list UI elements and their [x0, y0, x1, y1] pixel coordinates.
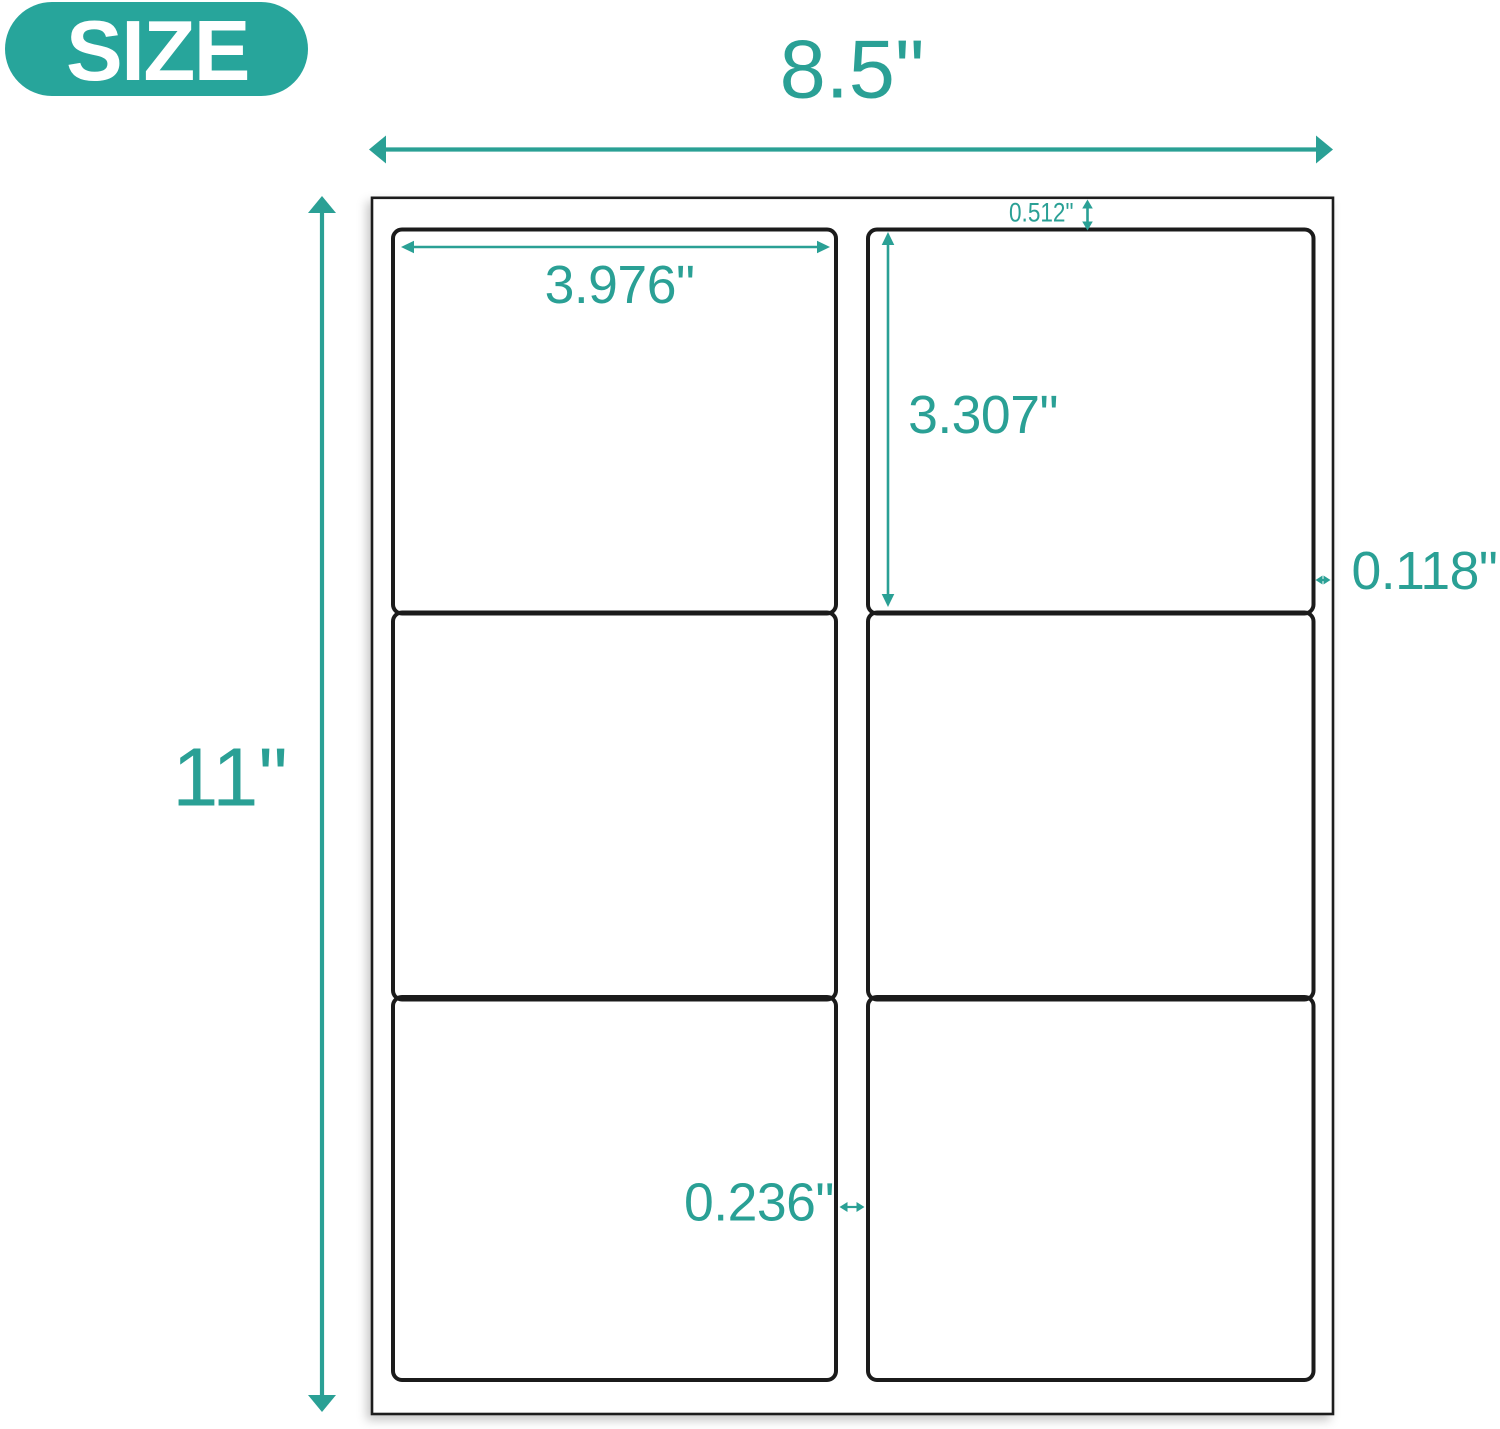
svg-text:3.976": 3.976"	[545, 256, 695, 315]
svg-text:0.512": 0.512"	[1009, 198, 1074, 228]
svg-text:8.5": 8.5"	[780, 23, 925, 116]
svg-text:0.118": 0.118"	[1352, 542, 1498, 601]
svg-text:3.307": 3.307"	[908, 386, 1058, 445]
svg-text:SIZE: SIZE	[66, 4, 249, 99]
svg-text:0.236": 0.236"	[684, 1174, 834, 1233]
svg-text:11": 11"	[172, 731, 288, 824]
